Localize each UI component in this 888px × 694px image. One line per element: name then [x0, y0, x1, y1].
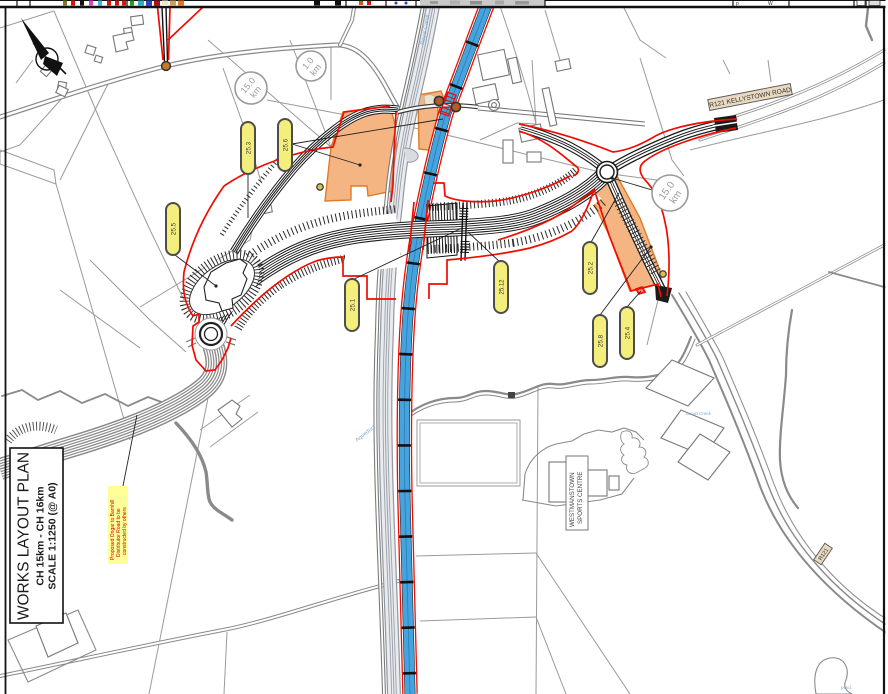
svg-text:25.8: 25.8 — [597, 334, 604, 347]
svg-text:constructed by others: constructed by others — [122, 507, 128, 555]
svg-text:W: W — [768, 1, 773, 7]
svg-text:CH 15km - CH 16km: CH 15km - CH 16km — [35, 486, 47, 585]
svg-text:Lucan Creek: Lucan Creek — [686, 411, 712, 416]
svg-text:pond: pond — [841, 685, 851, 690]
svg-text:25.2: 25.2 — [587, 261, 594, 274]
svg-text:25.12: 25.12 — [499, 279, 505, 295]
svg-text:25.4: 25.4 — [624, 326, 631, 339]
svg-text:25.5: 25.5 — [170, 222, 177, 235]
svg-text:SCALE 1:1250 (@ A0): SCALE 1:1250 (@ A0) — [47, 482, 59, 589]
svg-text:25.1: 25.1 — [349, 298, 356, 311]
svg-text:25.6: 25.6 — [282, 138, 289, 151]
svg-text:25.3: 25.3 — [245, 141, 252, 154]
svg-text:SPORTS CENTRE: SPORTS CENTRE — [577, 472, 584, 525]
svg-text:WORKS LAYOUT PLAN: WORKS LAYOUT PLAN — [16, 452, 33, 620]
svg-text:p: p — [736, 1, 739, 7]
svg-text:WESTMANSTOWN: WESTMANSTOWN — [569, 472, 576, 527]
